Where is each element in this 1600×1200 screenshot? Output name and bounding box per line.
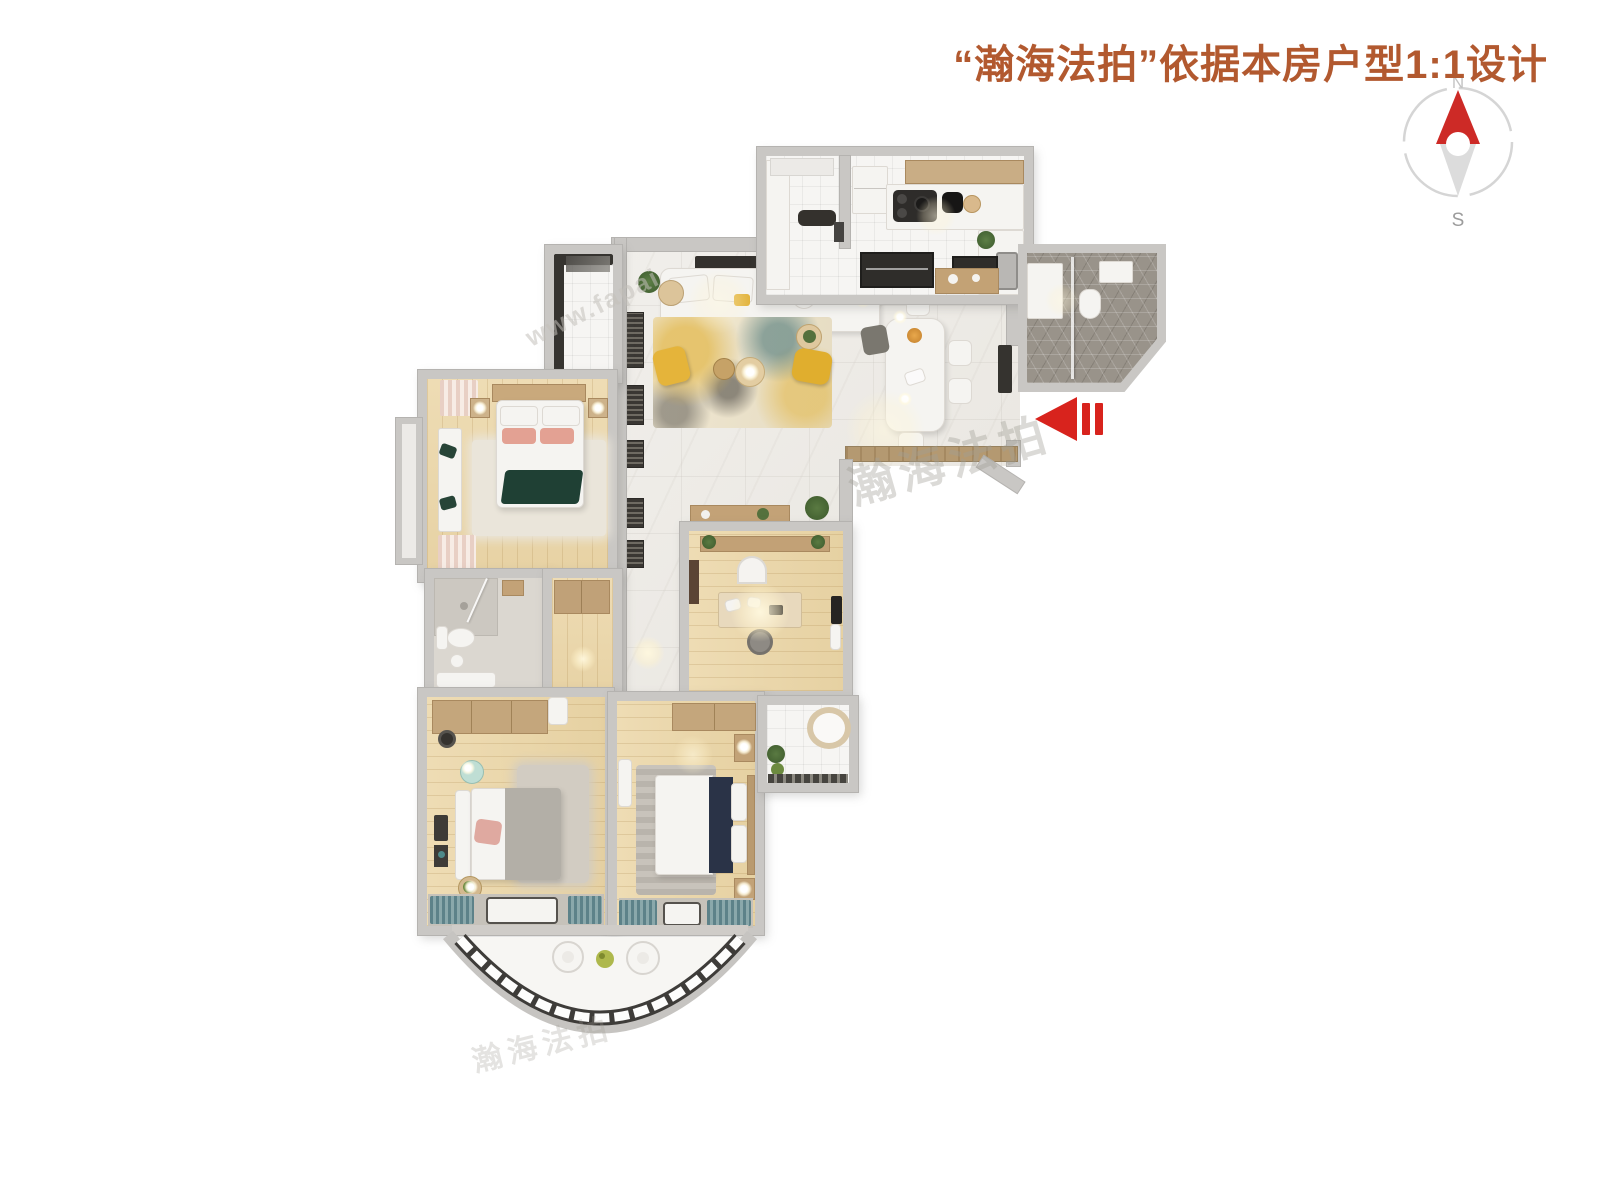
arch-niche: [737, 556, 767, 584]
balcony-top-left: [545, 245, 622, 383]
pillow: [542, 406, 580, 426]
window-frame-icon: [554, 254, 564, 374]
window-daybed: [486, 897, 558, 924]
desk-chair: [747, 629, 773, 655]
bedroom-2: [418, 688, 614, 935]
coffee-table-light: [741, 363, 759, 381]
kitchen-sink: [996, 252, 1018, 290]
toilet: [447, 628, 475, 648]
sideboard: [935, 268, 999, 294]
entrance-arrow-icon: [1035, 397, 1113, 443]
hall-cabinet: [554, 580, 610, 614]
hall-cabinet-line: [581, 581, 582, 613]
glass-partition: [860, 252, 934, 288]
curtain: [438, 535, 476, 571]
plant-icon: [811, 535, 825, 549]
bedside-lamp: [461, 761, 475, 775]
plant-icon: [805, 496, 829, 520]
fridge-handle: [854, 188, 886, 189]
bedside-lamp: [591, 401, 605, 415]
fridge: [852, 166, 888, 214]
sideboard-dish: [972, 274, 980, 282]
bedside-lamp: [736, 739, 752, 755]
bedside-lamp: [473, 401, 487, 415]
bedside-lamp: [464, 880, 478, 894]
range-hood: [834, 222, 844, 242]
duvet-gray: [505, 788, 561, 880]
pillow-pink: [540, 428, 574, 444]
window-glass: [566, 256, 610, 272]
fruit-bowl: [907, 328, 922, 343]
compass-south-label: S: [1452, 210, 1465, 231]
coffee-table-wood: [713, 358, 735, 380]
wardrobe-line: [511, 701, 512, 733]
plant-icon: [767, 745, 785, 763]
round-chair-cushion: [637, 952, 649, 964]
bath-cabinet: [1099, 261, 1133, 283]
dining-chair: [948, 340, 972, 366]
bath-shelf: [502, 580, 524, 596]
burner-icon: [897, 208, 907, 218]
yellow-pouf: [790, 347, 833, 386]
cutting-board: [963, 195, 981, 213]
pillow-pink: [502, 428, 536, 444]
sink: [450, 654, 464, 668]
washing-machine: [798, 210, 836, 226]
dining-chair-gray: [860, 324, 890, 356]
floorplan-screenshot: 瀚海法拍 瀚海法拍 www.fapai N S “瀚海法拍”依据本房户型1:1设…: [0, 0, 1600, 1200]
wall-art: [434, 815, 448, 841]
kettle-icon: [942, 192, 963, 213]
pillow-pink: [473, 818, 502, 845]
compass: N S: [1400, 70, 1516, 232]
pillow: [500, 406, 538, 426]
study: [680, 522, 852, 700]
round-chair-cushion: [562, 951, 574, 963]
plant-icon: [596, 950, 614, 968]
plant-icon: [638, 271, 660, 293]
plant-icon: [757, 508, 769, 520]
balcony-east: [758, 696, 858, 792]
study-cabinet: [689, 560, 699, 604]
ceiling-lamp-icon: [438, 730, 456, 748]
arrow-triangle: [1035, 397, 1077, 441]
side-table: [658, 280, 684, 306]
arrow-bar: [1095, 403, 1103, 435]
plant-icon: [803, 330, 816, 343]
pillow: [731, 825, 747, 863]
entry-threshold: [845, 446, 1018, 462]
dining-chair: [948, 378, 972, 404]
utility-cabinets: [770, 158, 834, 176]
wardrobe-line: [714, 704, 715, 730]
bathroom-1-floor: [1027, 253, 1157, 383]
laptop-icon: [769, 605, 783, 615]
pillow: [731, 783, 747, 821]
wall-tv: [831, 596, 842, 624]
curtain-teal: [430, 896, 474, 924]
curved-balcony: [440, 923, 760, 1035]
sofa-pillow-yellow: [734, 294, 750, 306]
toilet: [1079, 289, 1101, 319]
pan-icon: [914, 196, 930, 212]
bed: [655, 775, 713, 875]
dresser: [618, 759, 632, 807]
compass-hub: [1446, 132, 1470, 156]
burner-icon: [897, 194, 907, 204]
headboard: [747, 775, 755, 875]
bedside-lamp: [736, 881, 752, 897]
sideboard-dish: [948, 274, 958, 284]
bathroom-1: [1018, 244, 1166, 392]
balcony-sill: [452, 925, 748, 935]
bay-window: [396, 418, 422, 564]
arrow-bar: [1082, 403, 1090, 435]
hanging-chair: [807, 707, 851, 749]
bath-vanity: [436, 672, 496, 688]
blanket-navy: [709, 777, 733, 873]
glass-partition-line: [866, 268, 928, 270]
wardrobe-end: [548, 697, 568, 725]
shower-drain-icon: [460, 602, 468, 610]
art-teal-dot: [438, 851, 445, 858]
throw-blanket-green: [501, 470, 584, 504]
desk-paper: [746, 596, 761, 609]
console-decor: [701, 510, 710, 519]
headboard: [455, 790, 471, 880]
balcony-railing: [768, 774, 848, 783]
pendant-light: [893, 310, 907, 324]
plant-icon: [702, 535, 716, 549]
wall-unit: [830, 624, 841, 650]
entry-door-leaf: [998, 345, 1012, 393]
plant-icon: [977, 231, 995, 249]
corridor-light: [570, 646, 596, 672]
page-title: “瀚海法拍”依据本房户型1:1设计: [953, 32, 1548, 90]
wardrobe: [432, 700, 548, 734]
bath-vanity: [1027, 263, 1063, 319]
hall-light: [631, 636, 665, 670]
upper-cabinets: [905, 160, 1024, 184]
utility-counter: [766, 160, 790, 290]
pendant-light: [898, 392, 912, 406]
shower-glass: [1071, 257, 1074, 379]
bedroom-1: [418, 370, 617, 582]
plant-leaf: [599, 953, 605, 959]
wardrobe-line: [471, 701, 472, 733]
curtain-teal: [568, 896, 602, 924]
bedroom-3: [608, 692, 764, 935]
